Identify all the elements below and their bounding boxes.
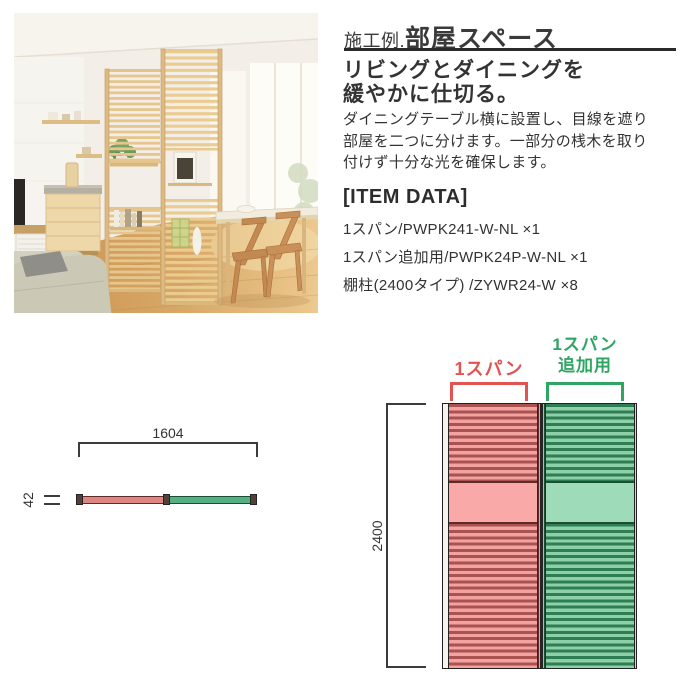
span1-label: 1スパン xyxy=(448,355,530,381)
partition-post xyxy=(105,69,109,291)
span2-label-line1: 1スパン xyxy=(542,334,628,355)
panel-span2-addon xyxy=(545,404,634,668)
plan-depth-tick-top xyxy=(44,495,60,497)
room-photo xyxy=(14,13,318,313)
item-row-span1-addon: 1スパン追加用/PWPK24P-W-NL ×1 xyxy=(343,246,588,267)
partition-post xyxy=(161,49,165,305)
plan-post-left xyxy=(76,494,83,505)
product-example-page: 施工例.部屋スペース リビングとダイニングを 緩やかに仕切る。 ダイニングテーブ… xyxy=(0,0,680,680)
title-divider-rule xyxy=(344,48,676,51)
description-line: 付けず十分な光を確保します。 xyxy=(343,152,648,174)
plan-bar-span2-addon xyxy=(167,496,257,504)
subtitle: リビングとダイニングを 緩やかに仕切る。 xyxy=(343,59,585,107)
open-section-span1 xyxy=(449,481,537,524)
item-row-shelf-posts: 棚柱(2400タイプ) /ZYWR24-W ×8 xyxy=(343,274,578,295)
front-partition-panel xyxy=(442,403,637,669)
panel-post-right xyxy=(634,404,636,668)
span1-bracket xyxy=(450,382,528,401)
height-tick-bottom xyxy=(386,666,426,668)
span2-addon-label: 1スパン 追加用 xyxy=(542,334,628,376)
bowl xyxy=(237,206,255,213)
span2-bracket xyxy=(546,382,624,401)
height-tick-top xyxy=(386,403,426,405)
description-line: 部屋を二つに分けます。一部分の桟木を取り xyxy=(343,131,648,153)
plan-width-dimension-label: 1604 xyxy=(78,425,258,441)
subtitle-line1: リビングとダイニングを xyxy=(343,59,585,83)
panel-posts-middle xyxy=(538,404,545,668)
open-section-span2 xyxy=(546,481,634,524)
height-dimension-label: 2400 xyxy=(369,515,385,557)
item-data-heading: [ITEM DATA] xyxy=(343,186,468,209)
plan-post-right xyxy=(250,494,257,505)
hanging-basket xyxy=(172,219,189,247)
plan-post-middle xyxy=(163,494,170,505)
plan-width-tick-left xyxy=(78,442,80,457)
plan-bar-span1 xyxy=(80,496,167,504)
cutting-board xyxy=(66,163,78,187)
item-row-span1: 1スパン/PWPK241-W-NL ×1 xyxy=(343,218,540,239)
plan-depth-tick-bottom xyxy=(44,503,60,505)
plan-depth-dimension-label: 42 xyxy=(20,490,38,510)
partition-post xyxy=(218,49,222,305)
panel-span1 xyxy=(449,404,538,668)
plan-width-dimension-line xyxy=(78,442,258,444)
plan-width-tick-right xyxy=(256,442,258,457)
sofa xyxy=(14,251,112,313)
duster xyxy=(193,227,202,255)
description-line: ダイニングテーブル横に設置し、目線を遮り xyxy=(343,109,648,131)
description: ダイニングテーブル横に設置し、目線を遮り 部屋を二つに分けます。一部分の桟木を取… xyxy=(343,109,648,174)
subtitle-line2: 緩やかに仕切る。 xyxy=(343,83,585,107)
height-dimension-line xyxy=(386,403,388,668)
span2-label-line2: 追加用 xyxy=(542,355,628,376)
